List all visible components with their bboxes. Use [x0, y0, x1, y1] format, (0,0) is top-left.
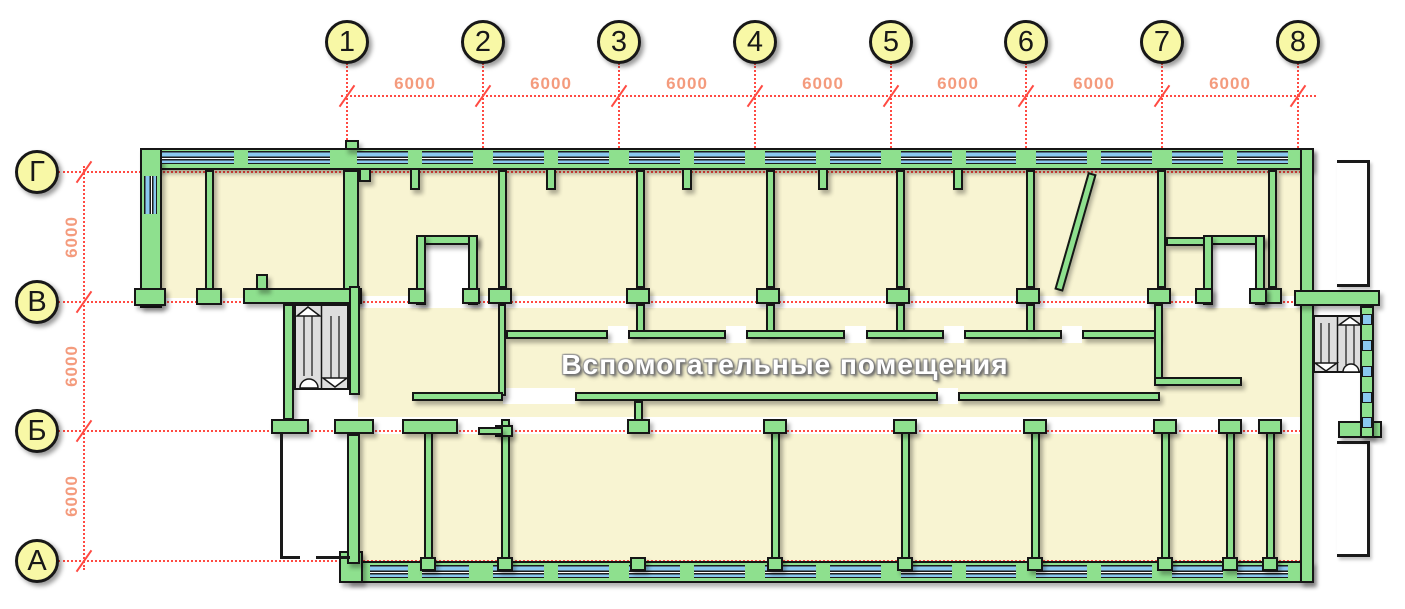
dim-label: 6000 — [62, 456, 82, 536]
axis-bubble-g: Г — [15, 150, 59, 194]
dim-label: 6000 — [783, 74, 863, 94]
door-gap — [944, 326, 964, 343]
axis-bubble-4: 4 — [733, 20, 777, 64]
axis-label: 4 — [747, 26, 763, 59]
axis-label: 1 — [339, 26, 355, 59]
stair-wall-top-right — [1294, 290, 1380, 306]
staircase-left — [294, 304, 349, 390]
window — [558, 151, 609, 164]
axis-bubble-8: 8 — [1276, 20, 1320, 64]
axis-bubble-a: А — [15, 539, 59, 583]
staircase-right — [1313, 315, 1362, 373]
wall-cap — [886, 288, 910, 304]
window — [1362, 366, 1372, 377]
axis-bubble-6: 6 — [1004, 20, 1048, 64]
corridor-wall — [1082, 330, 1158, 339]
column-stub — [682, 168, 692, 190]
door-gap — [608, 326, 628, 343]
wall-cap — [1249, 288, 1267, 304]
partition — [478, 427, 503, 435]
window — [1036, 565, 1087, 578]
porch-outline — [280, 556, 300, 559]
wall-pier — [1027, 557, 1043, 571]
partition — [1154, 377, 1242, 386]
window — [629, 151, 680, 164]
window — [830, 151, 881, 164]
window — [248, 151, 330, 164]
axis-bubble-2: 2 — [461, 20, 505, 64]
wall-left-exterior — [140, 148, 162, 308]
dim-label: 6000 — [375, 74, 455, 94]
window — [162, 151, 234, 164]
window — [1101, 565, 1152, 578]
stair-wall-left — [283, 304, 294, 420]
window — [1362, 417, 1372, 428]
corridor-wall — [506, 330, 608, 339]
door-gap — [726, 326, 746, 343]
corridor-wall — [958, 392, 1160, 401]
window — [694, 565, 745, 578]
wall-cap — [1023, 419, 1047, 434]
dim-label: 6000 — [511, 74, 591, 94]
wall-pier — [767, 557, 783, 571]
window — [1362, 314, 1372, 325]
partition — [1157, 170, 1166, 288]
partition — [1268, 170, 1277, 288]
door-gap — [503, 388, 575, 404]
wall-pier — [1157, 557, 1173, 571]
dim-label: 6000 — [62, 197, 82, 277]
partition — [771, 419, 780, 561]
axis-label: 5 — [883, 26, 899, 59]
partition — [205, 170, 214, 290]
stair-wall-right — [349, 286, 360, 395]
dim-line-left — [83, 166, 85, 570]
wall-cap — [134, 288, 166, 306]
window — [830, 565, 881, 578]
axis-bubble-1: 1 — [325, 20, 369, 64]
axis-label: А — [27, 545, 46, 578]
window — [144, 176, 157, 214]
wall-nub — [256, 274, 268, 290]
wall-cap — [462, 288, 480, 304]
wall-cap — [271, 419, 309, 434]
wall-pier — [497, 557, 513, 571]
wall-nub — [359, 168, 371, 182]
wall-pier — [420, 557, 436, 571]
corridor-wall — [964, 330, 1062, 339]
window — [370, 565, 408, 578]
axis-label: 7 — [1154, 26, 1170, 59]
wall-bottom-left — [347, 434, 360, 564]
wall-pier — [630, 557, 646, 571]
partition — [901, 419, 910, 561]
partition — [424, 419, 433, 561]
porch-outline — [280, 434, 283, 559]
wall-pier — [1262, 557, 1278, 571]
corridor-wall — [628, 330, 726, 339]
axis-bubble-5: 5 — [869, 20, 913, 64]
window — [1362, 340, 1372, 351]
window — [1172, 151, 1223, 164]
wall-cap — [1016, 288, 1040, 304]
window — [493, 151, 544, 164]
corridor-wall — [866, 330, 944, 339]
partition — [766, 170, 775, 288]
window — [1036, 151, 1087, 164]
wall-cap — [1195, 288, 1213, 304]
window — [558, 565, 609, 578]
column-stub — [546, 168, 556, 190]
wall-axis1 — [343, 170, 359, 303]
wall-cap — [1147, 288, 1171, 304]
stair-landing-white — [294, 390, 349, 419]
window — [422, 151, 473, 164]
balcony-outline-bottom — [1337, 441, 1370, 557]
partition — [501, 419, 510, 561]
wall-cap — [334, 419, 374, 434]
wall-cap — [626, 288, 650, 304]
partition — [896, 170, 905, 288]
balcony-outline-top — [1337, 160, 1370, 287]
window — [1172, 565, 1223, 578]
dim-label: 6000 — [1054, 74, 1134, 94]
door-gap — [845, 326, 866, 343]
corridor-wall — [575, 392, 938, 401]
wall-right-exterior — [1300, 148, 1314, 583]
partition — [1026, 170, 1035, 288]
corridor-wall — [746, 330, 845, 339]
column-stub — [410, 168, 420, 190]
axis-label: 3 — [611, 26, 627, 59]
dim-label: 6000 — [647, 74, 727, 94]
window — [357, 151, 408, 164]
window — [966, 565, 1016, 578]
wall-cap — [1218, 419, 1242, 434]
partition — [1154, 304, 1163, 384]
porch-outline — [316, 556, 350, 559]
axis-label: 2 — [475, 26, 491, 59]
partition — [1161, 419, 1170, 561]
rooms-top-band — [150, 168, 1304, 298]
wall-cap — [196, 288, 222, 305]
partition — [498, 170, 507, 288]
axis-label: Б — [27, 415, 46, 448]
door-gap — [1062, 326, 1082, 343]
window — [966, 151, 1016, 164]
axis-label: Г — [29, 156, 45, 189]
axis-bubble-7: 7 — [1140, 20, 1184, 64]
corridor-wall — [412, 392, 503, 401]
floor-plan: Вспомогательные помещения 1 2 3 4 5 6 7 … — [0, 0, 1405, 609]
wall-cap — [756, 288, 780, 304]
wall-nub — [345, 140, 359, 150]
wall-pier — [897, 557, 913, 571]
wall-cap — [627, 419, 650, 434]
wall-cap — [1258, 419, 1282, 434]
corridor-label: Вспомогательные помещения — [495, 349, 1075, 381]
wall-cap — [893, 419, 917, 434]
column-stub — [818, 168, 828, 190]
window — [1237, 151, 1288, 164]
axis-bubble-3: 3 — [597, 20, 641, 64]
partition — [636, 170, 645, 288]
axis-label: 8 — [1290, 26, 1306, 59]
axis-bubble-b: Б — [15, 409, 59, 453]
window — [1101, 151, 1152, 164]
axis-label: 6 — [1018, 26, 1034, 59]
window — [765, 151, 816, 164]
wall-cap — [1153, 419, 1177, 434]
wall-cap — [402, 419, 458, 434]
partition — [1166, 237, 1207, 246]
partition — [1226, 419, 1235, 561]
wall-cap — [763, 419, 787, 434]
stair-wall-top — [243, 288, 362, 304]
dim-label: 6000 — [62, 326, 82, 406]
axis-label: В — [27, 286, 46, 319]
dim-line-top — [341, 95, 1316, 97]
grid-line-row-b — [58, 430, 1313, 432]
partition — [1031, 419, 1040, 561]
window — [1362, 392, 1372, 403]
dim-label: 6000 — [1190, 74, 1270, 94]
dim-label: 6000 — [918, 74, 998, 94]
wall-cap — [488, 288, 512, 304]
wall-cap — [408, 288, 426, 304]
door-gap — [938, 388, 958, 404]
column-stub — [953, 168, 963, 190]
axis-bubble-v: В — [15, 280, 59, 324]
wall-pier — [1222, 557, 1238, 571]
window — [901, 151, 952, 164]
partition — [1266, 419, 1275, 561]
window — [694, 151, 745, 164]
